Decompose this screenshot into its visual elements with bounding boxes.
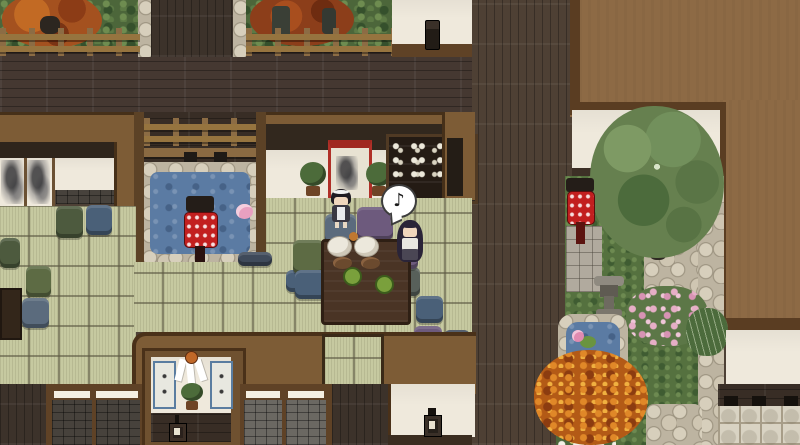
autumn-bush-icon [534,350,648,445]
shoji-screens[interactable] [240,384,332,445]
floor-cushion [293,240,324,274]
stone-lantern-icon [604,296,614,310]
girl-face [403,227,417,237]
lantern-post [576,222,585,244]
scroll-painting [336,156,358,190]
bonsai-pot [306,186,320,196]
bonsai-icon [181,383,203,401]
calligraphy-scroll [210,361,233,409]
walkway-planks[interactable] [151,0,233,57]
plaster-wall [55,158,115,190]
shoji-transom [288,391,324,398]
bonsai-pot [186,401,198,410]
lantern-glow [429,421,435,429]
maid-feet [343,222,347,228]
door-panel[interactable] [52,400,92,445]
tea-cup [375,275,394,294]
alcove-lower-panel [151,413,231,442]
red-lantern-icon [567,191,595,225]
engawa-deck [0,48,472,116]
door-transom [54,391,90,398]
floor-cushion [86,205,112,235]
roof-right [720,100,800,332]
courtyard-post [256,112,266,262]
lower-plank-wall [0,384,46,445]
speech-bubble: ♪ [381,184,417,218]
floor-cushion [238,252,272,266]
tatami-floor-center[interactable] [134,262,266,332]
wall-cabinet [447,138,463,196]
girl-bangs [402,223,418,228]
lantern-cap [566,178,594,192]
character-seated-girl[interactable] [395,220,425,266]
floating-blossom-icon [236,204,253,219]
red-lantern-icon [184,212,218,248]
floor-cushion [56,206,83,238]
wall-lantern-icon [425,20,440,50]
rice-bowl [354,236,379,257]
floor-cushion [416,296,443,323]
door-panel[interactable] [96,400,140,445]
ink-painting [27,160,50,204]
bonsai-icon [300,162,326,186]
tea-cup [343,267,362,286]
game-viewport[interactable]: ♪ [0,0,800,445]
music-note-icon: ♪ [393,192,405,210]
floor-cushion [0,238,20,268]
transom-lattice [56,190,114,204]
doorway-tatami[interactable] [322,334,384,390]
rice-bowl [327,236,352,257]
calligraphy-scroll [153,361,176,409]
garden-stone-path[interactable] [646,404,702,445]
garden-tree-icon [590,106,724,258]
shrine-ornament-icon [185,351,198,364]
garden-fence [0,28,140,56]
character-maid[interactable] [328,189,354,231]
shrine-alcove[interactable] [142,348,246,445]
garden-fence [246,28,392,56]
courtyard-beam [142,148,260,157]
lantern-glow [174,428,180,435]
girl-skirt [402,249,418,260]
paved-court[interactable] [718,406,800,445]
side-table [0,288,22,340]
lantern-cap [186,196,214,212]
floor-cushion [22,298,49,328]
lotus-flower-icon [572,330,584,342]
maid-headband [333,190,349,194]
food-plate [361,257,380,269]
walkway-stone-edge [233,0,246,57]
shoji-panel[interactable] [244,400,282,445]
ink-painting [1,160,24,204]
food-item [349,232,358,241]
shoji-divider [24,158,27,206]
maid-feet [335,222,339,228]
courtyard-fence [144,118,258,146]
maid-apron [337,207,345,220]
spiky-plant-icon [686,308,728,356]
floor-cushion [26,266,51,297]
lower-plank-wall [332,384,388,445]
south-building-wall [726,330,800,386]
entrance-doors[interactable] [46,384,146,445]
roof-frame [570,0,580,112]
shoji-panel[interactable] [286,400,326,445]
shoji-transom [246,391,280,398]
door-transom [96,391,138,398]
